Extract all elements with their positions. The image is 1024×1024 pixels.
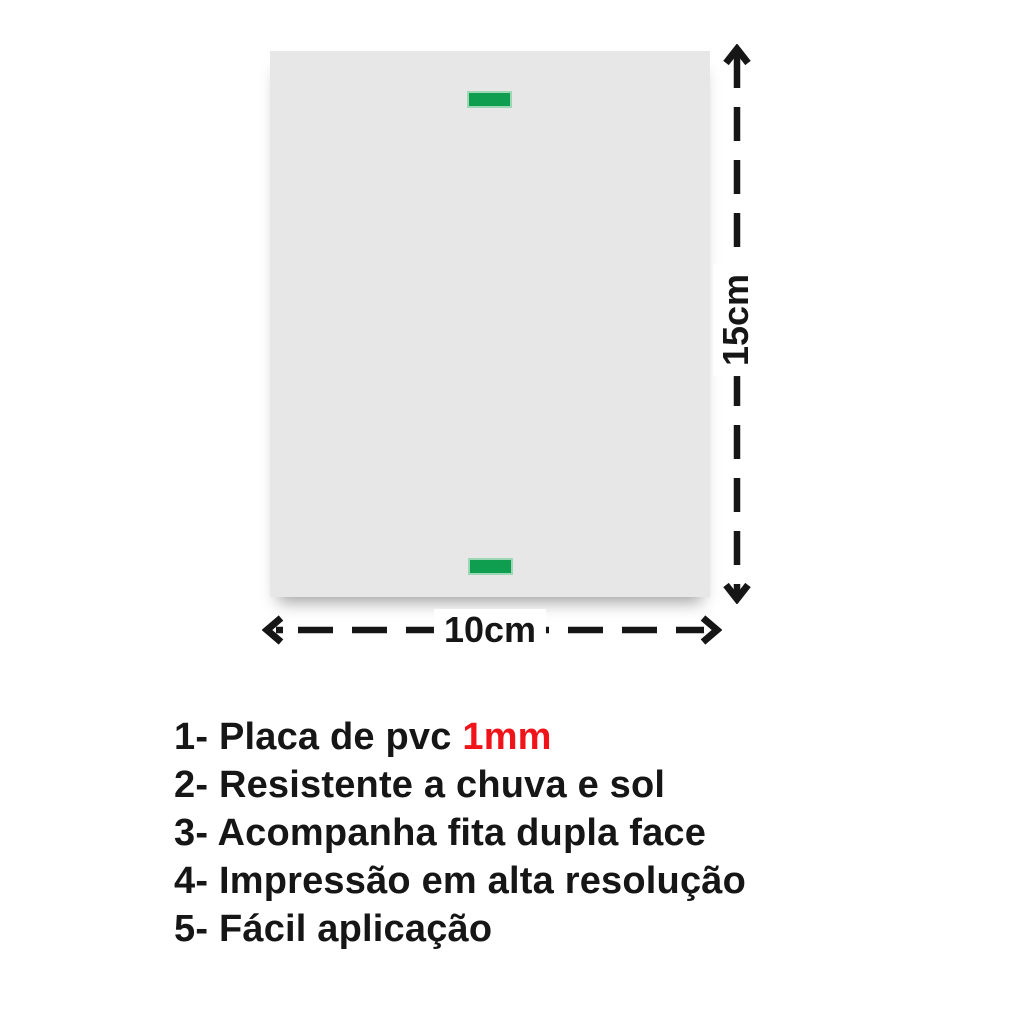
double-sided-tape-bottom: [468, 558, 513, 575]
feature-text: 3- Acompanha fita dupla face: [174, 812, 706, 854]
arrow-right-icon: [703, 618, 717, 642]
double-sided-tape-top: [467, 91, 512, 108]
feature-text: 1- Placa de pvc: [174, 716, 462, 758]
height-label: 15cm: [713, 264, 759, 376]
feature-item-5: 5- Fácil aplicação: [174, 905, 746, 953]
pvc-plate: [270, 51, 710, 597]
features-list: 1- Placa de pvc 1mm 2- Resistente a chuv…: [174, 713, 746, 953]
feature-item-1: 1- Placa de pvc 1mm: [174, 713, 746, 761]
feature-text: 4- Impressão em alta resolução: [174, 860, 746, 902]
product-infographic: 15cm 10cm 1- Placa de pvc 1mm 2- Resiste…: [0, 0, 1024, 1024]
width-label: 10cm: [434, 609, 546, 651]
feature-item-3: 3- Acompanha fita dupla face: [174, 809, 746, 857]
feature-item-4: 4- Impressão em alta resolução: [174, 857, 746, 905]
thickness-highlight: 1mm: [462, 716, 551, 758]
feature-item-2: 2- Resistente a chuva e sol: [174, 761, 746, 809]
feature-text: 2- Resistente a chuva e sol: [174, 764, 665, 806]
feature-text: 5- Fácil aplicação: [174, 908, 492, 950]
